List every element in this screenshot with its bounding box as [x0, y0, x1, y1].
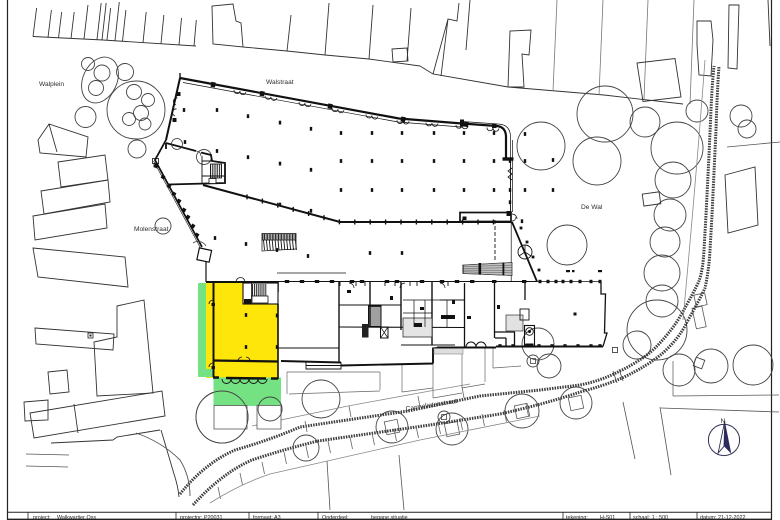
svg-text:Molenstraat: Molenstraat	[134, 226, 169, 233]
svg-text:N: N	[721, 418, 726, 425]
svg-text:De Wal: De Wal	[581, 204, 603, 211]
svg-text:datum: 21-12-2022: datum: 21-12-2022	[700, 515, 746, 520]
svg-text:Walkwartier Oss: Walkwartier Oss	[57, 515, 96, 520]
svg-text:Walplein: Walplein	[39, 81, 64, 88]
svg-text:schaal: 1 : 500: schaal: 1 : 500	[633, 515, 668, 520]
svg-text:project:: project:	[33, 515, 51, 520]
svg-text:tekening:: tekening:	[566, 515, 588, 520]
svg-text:Walstraat: Walstraat	[266, 79, 294, 86]
svg-text:Onderdeel:: Onderdeel:	[322, 515, 349, 520]
svg-text:begane situatie: begane situatie	[371, 515, 408, 520]
svg-text:H-S01: H-S01	[600, 515, 615, 520]
svg-text:projectnr: P20031: projectnr: P20031	[180, 515, 223, 520]
svg-text:formaat: A3: formaat: A3	[253, 515, 281, 520]
